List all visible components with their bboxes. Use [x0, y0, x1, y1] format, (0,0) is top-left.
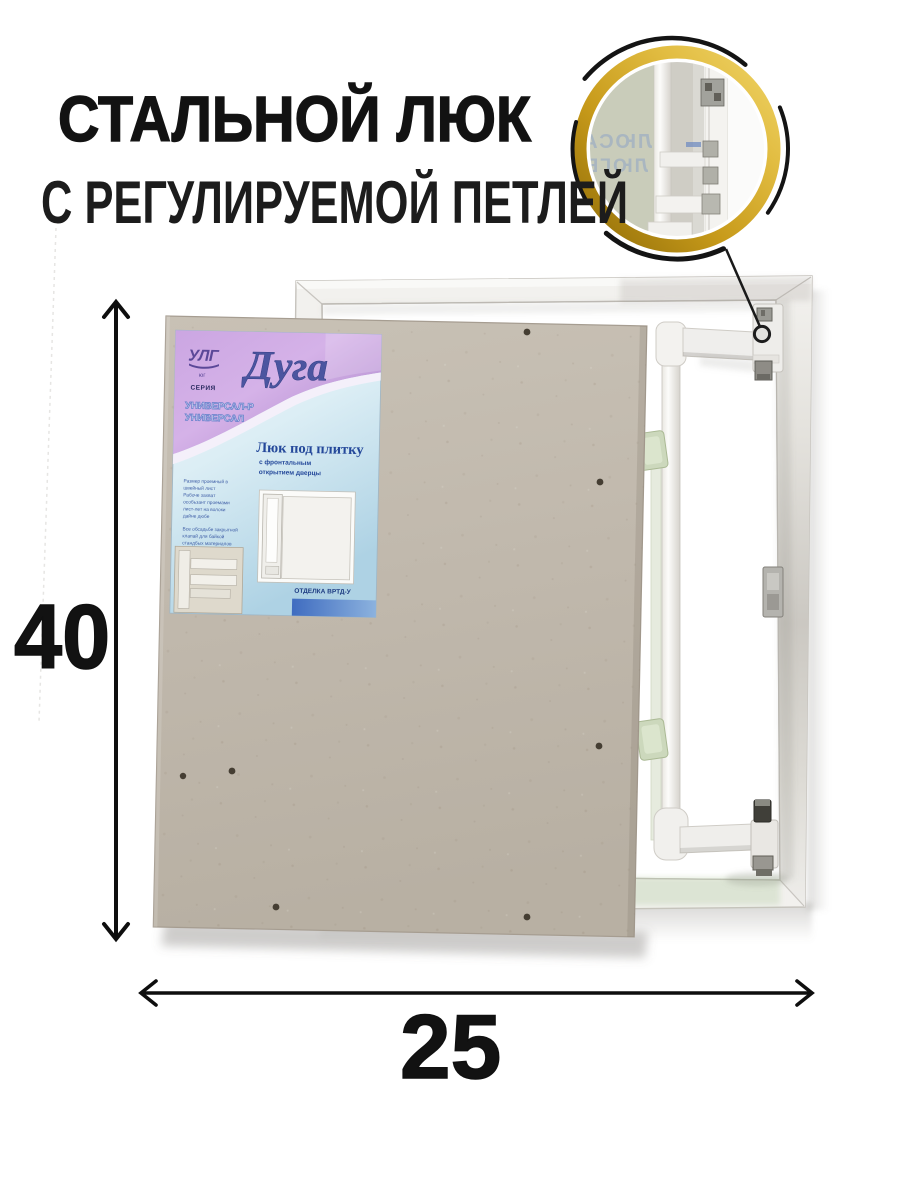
svg-text:юг: юг: [199, 373, 207, 379]
svg-text:открытием дверцы: открытием дверцы: [259, 469, 322, 477]
svg-text:Дуга: Дуга: [241, 342, 329, 390]
svg-text:Рабоче захват: Рабоче захват: [183, 492, 216, 499]
svg-text:СЕРИЯ: СЕРИЯ: [190, 385, 215, 393]
svg-text:особьзант проемами: особьзант проемами: [183, 499, 230, 506]
svg-text:Люк под плитку: Люк под плитку: [256, 440, 364, 458]
svg-text:УЛГ: УЛГ: [188, 347, 220, 365]
svg-text:ЛЮСА: ЛЮСА: [581, 131, 652, 153]
svg-text:лист-лет на волоки: лист-лет на волоки: [183, 507, 226, 513]
svg-text:ОТДЕЛКА ВРТД-У: ОТДЕЛКА ВРТД-У: [294, 588, 352, 596]
svg-text:с фронтальным: с фронтальным: [259, 459, 312, 467]
svg-text:УНИВЕРСАЛ: УНИВЕРСАЛ: [185, 412, 245, 424]
svg-text:УНИВЕРСАЛ-Р: УНИВЕРСАЛ-Р: [185, 400, 255, 412]
